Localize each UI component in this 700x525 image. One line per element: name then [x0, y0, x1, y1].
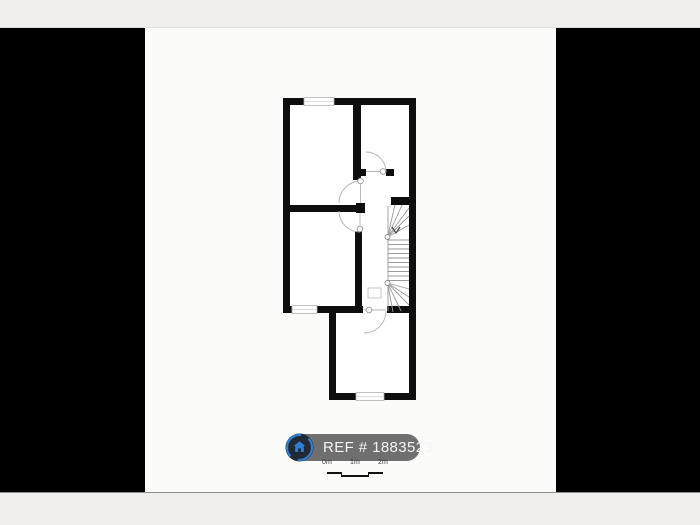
stair-landing-box: [368, 288, 381, 298]
scale-segment-join: [341, 472, 342, 478]
scale-label-2m: 2m: [378, 459, 388, 466]
floorplan-viewer: REF # 1883523 0m 1m 2m: [0, 0, 700, 525]
scale-label-1m: 1m: [350, 459, 360, 466]
window-icon: [292, 306, 317, 314]
scale-segment: [327, 472, 341, 475]
scale-segment: [369, 472, 383, 475]
window-icon: [304, 98, 334, 106]
scale-label-0m: 0m: [322, 459, 332, 466]
scale-segment-join: [368, 472, 369, 478]
scale-segment: [341, 475, 369, 478]
window-icon: [356, 393, 384, 401]
brand-house-icon: [284, 432, 315, 463]
